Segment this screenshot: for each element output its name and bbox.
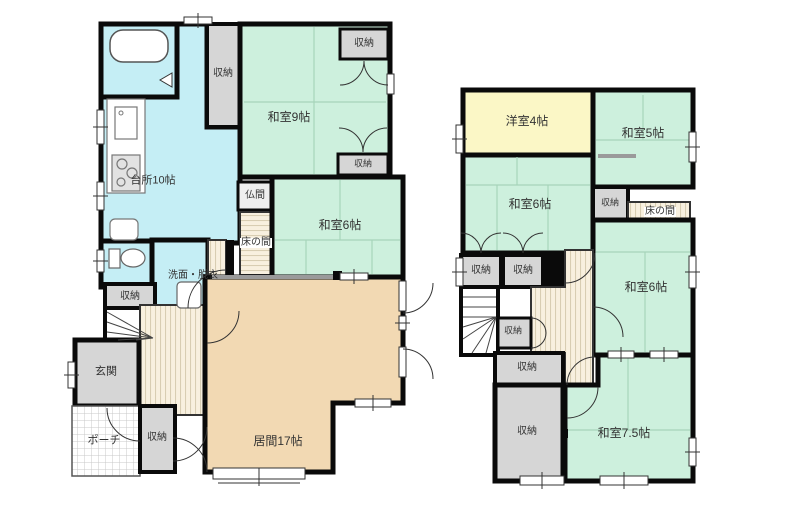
doorstop-2f xyxy=(561,429,568,438)
room-label-storage-2f-a: 収納 xyxy=(471,266,491,276)
toilet-bowl-icon xyxy=(121,249,145,267)
washstand-icon xyxy=(177,282,201,308)
room-label-storage-midleft: 収納 xyxy=(120,292,140,302)
room-label-tokonoma-2f: 床の間 xyxy=(644,207,676,217)
floorplan-canvas: 台所10帖 収納 和室9帖 収納 収納 仏間 床の間 和室6帖 洗面・脱衣 収納… xyxy=(0,0,800,514)
room-label-japanese75: 和室7.5帖 xyxy=(598,427,651,439)
room-label-storage-2f-small: 収納 xyxy=(504,327,522,336)
room-label-storage-column: 収納 xyxy=(213,69,233,79)
room-label-porch: ポーチ xyxy=(88,436,121,447)
bathtub-icon xyxy=(110,30,168,62)
room-label-storage-2f-big: 収納 xyxy=(517,427,537,437)
room-label-japanese6-1f: 和室6帖 xyxy=(319,219,362,231)
room-label-japanese5: 和室5帖 xyxy=(622,127,665,139)
room-label-storage-2f-mid: 収納 xyxy=(517,363,537,373)
wall-chunk-2f xyxy=(541,251,565,287)
room-label-japanese6-2f-right: 和室6帖 xyxy=(625,281,668,293)
room-label-storage-2f-b: 収納 xyxy=(513,266,533,276)
room-label-closet-br: 収納 xyxy=(354,160,372,169)
kitchen-sink-icon xyxy=(115,107,137,139)
room-label-kitchen: 台所10帖 xyxy=(130,176,175,187)
room-label-storage-bottom: 収納 xyxy=(147,433,167,443)
wall-chunk-1f xyxy=(226,240,234,280)
basin-icon xyxy=(110,219,138,240)
room-label-butsuma: 仏間 xyxy=(245,191,265,201)
room-label-tokonoma-1f: 床の間 xyxy=(240,238,272,248)
room-label-japanese6-2f-upper: 和室6帖 xyxy=(509,198,552,210)
room-label-japanese9: 和室9帖 xyxy=(268,111,311,123)
room-label-storage-2f-center: 収納 xyxy=(601,199,619,208)
room-label-western4: 洋室4帖 xyxy=(506,115,549,127)
room-living-shape xyxy=(205,277,403,472)
room-label-washroom: 洗面・脱衣 xyxy=(168,271,218,281)
room-label-living: 居間17帖 xyxy=(253,435,302,447)
toilet-tank-icon xyxy=(109,249,120,268)
room-label-closet-tr: 収納 xyxy=(354,39,374,49)
floor1-rooms xyxy=(72,24,403,476)
room-label-entrance: 玄関 xyxy=(95,367,117,378)
hallway-1f-shape xyxy=(140,305,207,415)
